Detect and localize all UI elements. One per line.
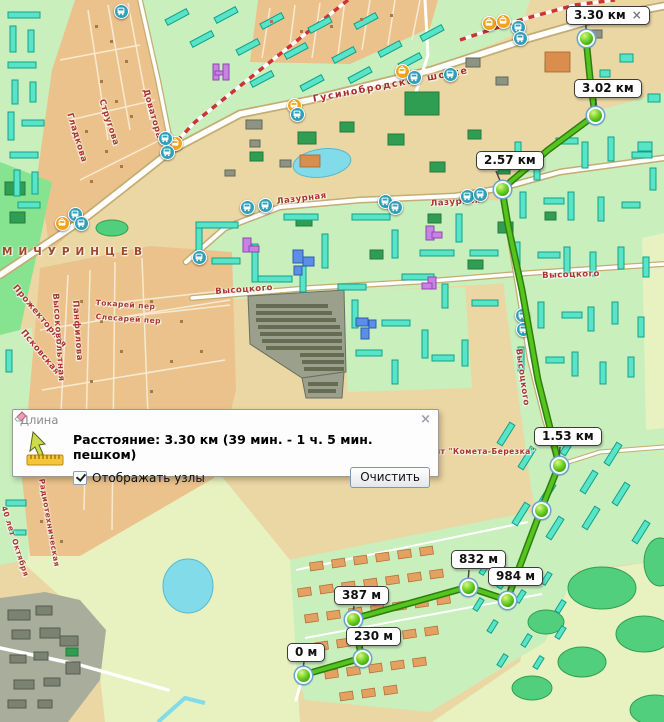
distance-marker-230m[interactable]: 230 м	[346, 627, 401, 646]
route-node[interactable]	[494, 181, 511, 198]
bus-stop-icon[interactable]	[388, 200, 403, 215]
distance-marker-3-30km-total[interactable]: 3.30 км ×	[566, 6, 650, 25]
distance-marker-2-57km[interactable]: 2.57 км	[476, 151, 544, 170]
distance-marker-984m[interactable]: 984 м	[488, 567, 543, 586]
tram-stop-icon[interactable]	[55, 216, 70, 231]
area-label-snt-kometa: снт "Комета-Березка"	[430, 447, 535, 456]
distance-marker-0m[interactable]: 0 м	[287, 643, 325, 662]
bus-stop-icon[interactable]	[114, 4, 129, 19]
distance-marker-387m[interactable]: 387 м	[334, 586, 389, 605]
bus-stop-icon[interactable]	[473, 187, 488, 202]
distance-marker-1-53km[interactable]: 1.53 км	[534, 427, 602, 446]
route-node[interactable]	[533, 502, 550, 519]
bus-stop-icon[interactable]	[192, 250, 207, 265]
ruler-cursor-icon	[21, 430, 73, 488]
show-nodes-label: Отображать узлы	[92, 471, 205, 485]
distance-summary-text: Расстояние: 3.30 км (39 мин. - 1 ч. 5 ми…	[73, 432, 430, 462]
route-node[interactable]	[345, 611, 362, 628]
measure-dialog: Длина × Расстояние: 3.30 км (39 мин. - 1…	[12, 409, 439, 477]
close-icon[interactable]: ×	[420, 413, 431, 426]
close-icon[interactable]: ×	[632, 9, 642, 21]
bus-stop-icon[interactable]	[515, 308, 530, 323]
bus-stop-icon[interactable]	[240, 200, 255, 215]
distance-marker-3-02km[interactable]: 3.02 км	[574, 79, 642, 98]
cursor-arrow-icon	[30, 432, 45, 456]
bus-stop-icon[interactable]	[74, 216, 89, 231]
route-node[interactable]	[551, 457, 568, 474]
bus-stop-icon[interactable]	[160, 145, 175, 160]
route-node[interactable]	[460, 579, 477, 596]
bus-stop-icon[interactable]	[513, 31, 528, 46]
route-node[interactable]	[295, 667, 312, 684]
route-node[interactable]	[499, 592, 516, 609]
route-node[interactable]	[578, 30, 595, 47]
area-label-michurintsev: МИЧУРИНЦЕВ	[2, 246, 148, 258]
ruler-icon	[27, 455, 63, 465]
sports-field	[405, 92, 439, 115]
bus-stop-icon[interactable]	[290, 107, 305, 122]
pond	[163, 559, 213, 613]
route-node[interactable]	[587, 107, 604, 124]
tram-stop-icon[interactable]	[496, 14, 511, 29]
map-canvas[interactable]: Гусинобродское шоссе Лазурная Лазурная В…	[0, 0, 664, 722]
bus-stop-icon[interactable]	[516, 322, 531, 337]
street-label-vysotskogo-2: Высоцкого	[542, 269, 600, 281]
route-node[interactable]	[354, 650, 371, 667]
bus-stop-icon[interactable]	[258, 198, 273, 213]
clear-button[interactable]: Очистить	[350, 467, 430, 488]
bus-stop-icon[interactable]	[407, 70, 422, 85]
tram-stop-icon[interactable]	[482, 16, 497, 31]
bus-stop-icon[interactable]	[443, 67, 458, 82]
measure-dialog-header[interactable]: Длина ×	[13, 410, 438, 428]
eraser-icon	[13, 410, 27, 422]
show-nodes-checkbox[interactable]	[73, 471, 87, 485]
bus-stop-icon[interactable]	[158, 131, 173, 146]
